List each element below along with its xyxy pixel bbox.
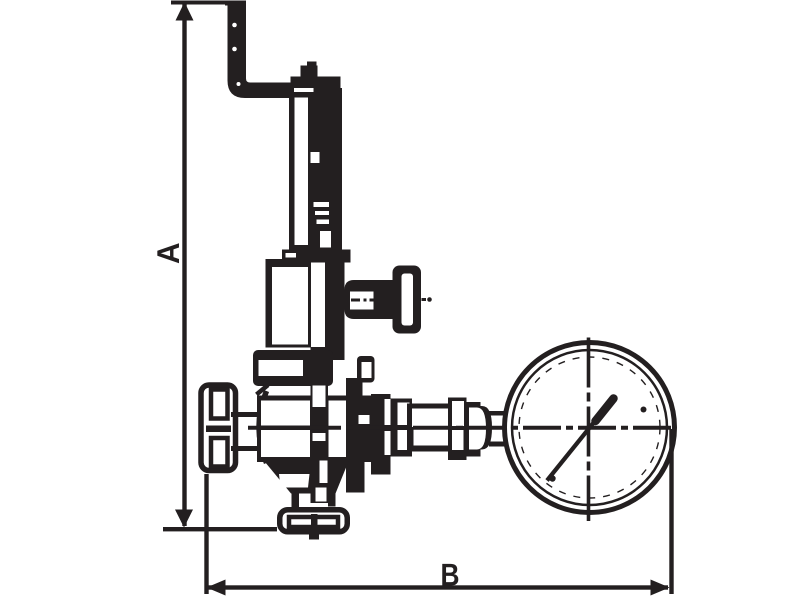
svg-text:B: B bbox=[441, 556, 460, 592]
svg-text:A: A bbox=[150, 242, 186, 264]
